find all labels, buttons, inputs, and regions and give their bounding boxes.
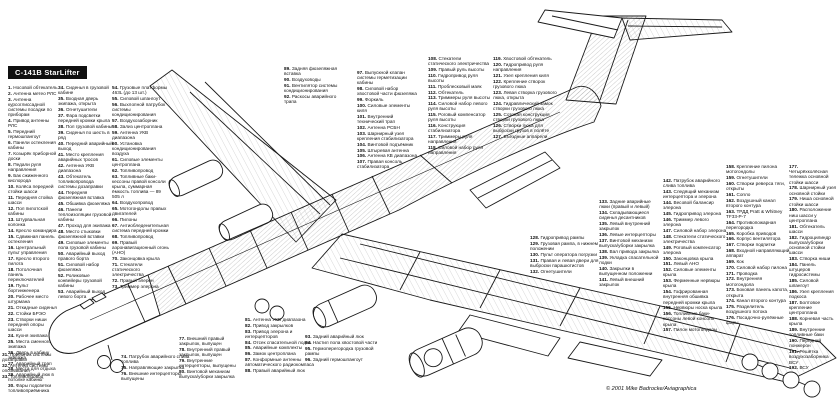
- legend-item: 156. Топливные баки-кессоны левой консол…: [663, 311, 727, 327]
- legend-item: 43. Обтекатель топливопровода системы до…: [58, 174, 113, 190]
- legend-item: 24. Кухня экипажа: [8, 333, 58, 338]
- legend-item: 61. Силовые элементы центроплана: [112, 157, 170, 167]
- legend-item: 190. Передний лонжерон: [789, 338, 838, 348]
- legend-item: 177. Четырёхколёсная тележка основной ст…: [789, 164, 838, 185]
- legend-item: 90. Воздуховоды: [284, 77, 344, 82]
- legend-item: 92. Раскосы аварийного трапа: [284, 94, 344, 104]
- right-engine-pods: [166, 157, 225, 199]
- legend-item: 9. Бак сжиженного кислорода: [8, 173, 58, 183]
- legend-column-12: 128. Гидропривод рампы129. Грузовая рамп…: [530, 235, 600, 274]
- diagram-title: C-141B StarLifter: [8, 66, 87, 79]
- legend-item: 98. Силовой набор хвостовой части фюзеля…: [357, 86, 419, 96]
- legend-item: 145. Гидропривод элерона: [663, 211, 727, 216]
- legend-item: 144. Весовой балансир элерона: [663, 200, 727, 210]
- legend-item: 95. Гермоперегородка грузовой рампы: [305, 346, 387, 356]
- legend-column-2: 34. Сиденья в грузовой кабине35. Входная…: [58, 85, 113, 300]
- legend-item: 97. Выпускной клапан системы герметизаци…: [357, 70, 419, 86]
- legend-item: 147. Силовой набор элерона: [663, 228, 727, 233]
- legend-item: 23. Створки ниши передней опоры шасси: [8, 317, 58, 333]
- legend-item: 108. Стекатели статического электричеств…: [428, 56, 490, 66]
- legend-item: 128. Гидропривод рампы: [530, 235, 600, 240]
- legend-item: 187. Болтовое крепление центроплана: [789, 300, 838, 316]
- legend-item: 114. Силовой набор левого руля высоты: [428, 101, 490, 111]
- legend-item: 59. Антенна УКВ диапазона: [112, 130, 170, 140]
- legend-item: 77. Внешний правый закрылок, выпущен: [179, 336, 245, 346]
- legend-item: 127. Въездные аппарели: [493, 134, 557, 139]
- legend-item: 34. Сиденья в грузовой кабине: [58, 85, 113, 95]
- legend-column-15: 158. Крепление пилона мотогондолы159. Ог…: [726, 164, 790, 326]
- legend-item: 58. Зализ центроплана: [112, 124, 170, 129]
- legend-item: 99. Форкиль: [357, 97, 419, 102]
- legend-item: 8. Педали руля направления: [8, 162, 58, 172]
- legend-item: 164. Противопожарная перегородка: [726, 220, 790, 230]
- legend-item: 171. Проводка: [726, 271, 790, 276]
- legend-item: 45. Обшивка фюзеляжа: [58, 201, 113, 206]
- legend-item: 62. Топливопровод: [112, 168, 170, 173]
- legend-column-14: 142. Патрубок аварийного слива топлива14…: [663, 178, 727, 333]
- legend-item: 31. Приёмник системы дозаправки: [2, 352, 56, 362]
- legend-item: 57. Воздухозаборник: [112, 118, 170, 123]
- legend-column-7: 119. Хвостовой обтекатель120. Гидроприво…: [493, 56, 557, 139]
- legend-item: 180. Расположение ниш шасси у центроплан…: [789, 207, 838, 223]
- legend-item: 157. Пилон мотогондолы: [663, 327, 727, 332]
- legend-item: 141. Левый внешний закрылок: [599, 277, 661, 287]
- legend-item: 179. Ниша основной стойки шасси: [789, 196, 838, 206]
- legend-item: 153. Ферменные нервюры крыла: [663, 278, 727, 288]
- legend-item: 25. Места сменного экипажа: [8, 339, 58, 349]
- legend-item: 81. Антенна УКВ диапазона: [245, 317, 317, 322]
- legend-item: 38. Пол грузовой кабины: [58, 124, 113, 129]
- legend-item: 40. Передний аварийный выход: [58, 141, 113, 151]
- legend-column-1b: 31. Приёмник системы дозаправки32. Антен…: [2, 352, 56, 380]
- legend-item: 168. Входной направляющий аппарат: [726, 248, 790, 258]
- legend-item: 66. Пилоны: [112, 217, 170, 222]
- legend-item: 122. Крепление створок грузового люка: [493, 79, 557, 89]
- legend-item: 186. Узел крепления подкоса: [789, 289, 838, 299]
- legend-item: 161. Сопло: [726, 192, 790, 197]
- legend-item: 5. Передний гермошпангоут: [8, 129, 58, 139]
- legend-item: 63. Топливные баки-кессоны правой консол…: [112, 174, 170, 200]
- legend-item: 139. Укладка спасательной лодки: [599, 255, 661, 265]
- legend-item: 56. Выхлопной патрубок системы кондицион…: [112, 102, 170, 118]
- legend-item: 3. Антенна курсоглиссадной системы посад…: [8, 97, 58, 118]
- legend-item: 176. Посадочно-рулёжные фары: [726, 315, 790, 325]
- legend-item: 51. Силовой набор фюзеляжа: [58, 262, 113, 272]
- legend-item: 94. Настил пола хвостовой части: [305, 340, 387, 345]
- legend-item: 172. Внутренняя мотогондола: [726, 276, 790, 286]
- legend-item: 136. Левые интерцепторы: [599, 232, 661, 237]
- legend-item: 162. Воздушный канал второго контура: [726, 198, 790, 208]
- legend-item: 138. Вал привода закрылка: [599, 249, 661, 254]
- legend-column-16: 177. Четырёхколёсная тележка основной ст…: [789, 164, 838, 371]
- legend-item: 182. Гидроцилиндр выпуска/уборки основно…: [789, 235, 838, 256]
- legend-item: 185. Силовой шпангоут: [789, 278, 838, 288]
- legend-item: 10. Колёса передней стойки шасси: [8, 184, 58, 194]
- legend-item: 137. Винтовой механизм выпуска/уборки за…: [599, 238, 661, 248]
- legend-item: 16. Центральный пульт управления: [8, 245, 58, 255]
- legend-item: 72. Правый элерон: [112, 278, 170, 283]
- legend-item: 151. Левый АНО: [663, 261, 727, 266]
- legend-item: 65. Мотогондолы правых двигателей: [112, 206, 170, 216]
- legend-item: 110. Гидропривод руля высоты: [428, 73, 490, 83]
- legend-item: 79. Внутренние интерцепторы, выпущены: [179, 358, 245, 368]
- legend-item: 121. Узел крепления киля: [493, 73, 557, 78]
- legend-item: 22. Стойки БРЭО: [8, 311, 58, 316]
- legend-item: 93. Задний аварийный люк: [305, 334, 387, 339]
- legend-item: 118. Силовой набор руля направления: [428, 145, 490, 155]
- legend-column-5: 97. Выпускной клапан системы герметизаци…: [357, 70, 419, 170]
- legend-item: 106. Антенна КВ диапазона: [357, 153, 419, 158]
- legend-item: 4. Привод антенны РЛС: [8, 118, 58, 128]
- legend-item: 41. Место крепления аварийных тросов: [58, 152, 113, 162]
- legend-item: 105. Штыревая антенна: [357, 148, 419, 153]
- legend-item: 82. Привод закрылков: [245, 323, 317, 328]
- copyright-credit: © 2001 Mike Badrocke/Aviagraphica: [606, 386, 696, 392]
- legend-item: 54. Грузовые платформы 463L (до 13 шт.): [112, 85, 170, 95]
- legend-item: 159. Огнетушители: [726, 175, 790, 180]
- legend-item: 146. Триммер левого элерона: [663, 217, 727, 227]
- legend-item: 14. Кресло командира: [8, 228, 58, 233]
- legend-item: 131. Правая и левая двери для выброски п…: [530, 258, 600, 268]
- legend-item: 71. Стекатели статического электричества: [112, 262, 170, 278]
- legend-item: 64. Воздухопровод: [112, 200, 170, 205]
- legend-item: 1. Носовой обтекатель: [8, 85, 58, 90]
- legend-item: 36. Огнетушители: [58, 107, 113, 112]
- legend-item: 68. Топливопровод: [112, 234, 170, 239]
- legend-item: 130. Пульт оператора погрузки: [530, 252, 600, 257]
- legend-item: 20. Рабочее место штурмана: [8, 294, 58, 304]
- legend-item: 152. Силовые элементы крыла: [663, 267, 727, 277]
- legend-item: 107. Правая консоль стабилизатора: [357, 159, 419, 169]
- legend-item: 15. Сдвижная панель остекления: [8, 234, 58, 244]
- legend-item: 19. Пульт бортинженера: [8, 283, 58, 293]
- legend-item: 115. Роговый компенсатор руля высоты: [428, 112, 490, 122]
- legend-item: 163. ТРДД Pratt & Whitney TF33-P-7: [726, 209, 790, 219]
- stabilizer-left: [538, 10, 622, 38]
- legend-item: 101. Внутренний технический трап: [357, 114, 419, 124]
- legend-item: 112. Обтекатель: [428, 90, 490, 95]
- legend-item: 125. Сотовая конструкция створки грузово…: [493, 112, 557, 122]
- legend-item: 7. Козырёк приборной доски: [8, 151, 58, 161]
- legend-item: 18. Потолочная панель переключателей: [8, 267, 58, 283]
- legend-item: 21. Откидные сиденья: [8, 305, 58, 310]
- legend-item: 60. Установка кондиционирования воздуха: [112, 141, 170, 157]
- legend-item: 2. Антенна метео РЛС: [8, 91, 58, 96]
- legend-item: 170. Силовой набор пилона: [726, 265, 790, 270]
- legend-item: 80. Винтовой механизм выпуска/уборки зак…: [179, 369, 245, 379]
- legend-item: 104. Винтовой подъёмник: [357, 142, 419, 147]
- legend-column-4: 89. Задняя фюзеляжная вставка90. Воздухо…: [284, 66, 344, 105]
- legend-item: 123. Левая створка грузового люка, откры…: [493, 90, 557, 100]
- legend-item: 178. Шарнирный узел основной стойки: [789, 185, 838, 195]
- legend-item: 35. Входная дверь экипажа, открыта: [58, 96, 113, 106]
- legend-item: 96. Задний гермошпангоут: [305, 357, 387, 362]
- legend-item: 119. Хвостовой обтекатель: [493, 56, 557, 61]
- legend-item: 142. Патрубок аварийного слива топлива: [663, 178, 727, 188]
- legend-item: 47. Проход для экипажа: [58, 223, 113, 228]
- legend-item: 111. Проблесковый маяк: [428, 84, 490, 89]
- legend-item: 148. Стекатели статического электричеств…: [663, 234, 727, 244]
- legend-item: 181. Обтекатель шасси: [789, 224, 838, 234]
- legend-item: 174. Канал второго контура: [726, 298, 790, 303]
- legend-item: 88. Правый аварийный люк: [245, 368, 317, 373]
- legend-item: 173. Боковая панель капота, открыта: [726, 287, 790, 297]
- legend-item: 103. Шарнирный узел крепления стабилизат…: [357, 131, 419, 141]
- legend-item: 143. Следящий механизм интерцептора и эл…: [663, 189, 727, 199]
- legend-item: 124. Гидравлический замок створки грузов…: [493, 101, 557, 111]
- legend-item: 37. Фара подсветки передней кромки крыла: [58, 113, 113, 123]
- legend-item: 189. Внутренние топливные баки: [789, 327, 838, 337]
- legend-item: 73. Триммер элерона: [112, 284, 170, 289]
- engine-cutaway-detail: [406, 324, 487, 380]
- legend-item: 149. Роговый компенсатор элерона: [663, 245, 727, 255]
- legend-item: 154. Гофрированная внутренняя обшивка пе…: [663, 289, 727, 305]
- legend-item: 134. Складывающиеся сиденья десантников: [599, 210, 661, 220]
- legend-item: 91. Вентилятор системы кондиционирования: [284, 83, 344, 93]
- legend-item: 183. Створка ниши: [789, 256, 838, 261]
- legend-item: 184. Панель штуцеров гидросистемы: [789, 262, 838, 278]
- legend-column-3: 54. Грузовые платформы 463L (до 13 шт.)5…: [112, 85, 170, 289]
- stabilizer-right: [622, 18, 732, 40]
- legend-item: 155. Нервюры носка крыла: [663, 305, 727, 310]
- legend-item: 175. Разделитель воздушного потока: [726, 304, 790, 314]
- legend-item: 129. Грузовая рампа, в нижнем положении: [530, 241, 600, 251]
- legend-item: 49. Силовые элементы пола грузовой кабин…: [58, 240, 113, 250]
- legend-item: 135. Левый внутренний закрылок: [599, 221, 661, 231]
- legend-item: 167. Створки подпитки: [726, 242, 790, 247]
- legend-column-6: 108. Стекатели статического электричеств…: [428, 56, 490, 156]
- legend-item: 52. Роликовые конвейеры грузовой кабины: [58, 273, 113, 289]
- legend-item: 69. Правый аэронавигационный огонь (АНО): [112, 240, 170, 256]
- legend-item: 100. Силовые элементы киля: [357, 103, 419, 113]
- legend-column-13: 133. Задние аварийные люки (правый и лев…: [599, 199, 661, 288]
- legend-item: 109. Правый руль высоты: [428, 67, 490, 72]
- legend-item: 117. Триммеры руля направления: [428, 134, 490, 144]
- legend-item: 50. Аварийный выход правого борта: [58, 251, 113, 261]
- legend-item: 192. ВСУ: [789, 365, 838, 370]
- legend-item: 55. Силовой шпангоут: [112, 96, 170, 101]
- legend-item: 32. Антенна системы опознавания: [2, 363, 56, 373]
- legend-column-9: 77. Внешний правый закрылок, выпущен78. …: [179, 336, 245, 380]
- legend-item: 12. Пол пилотской кабины: [8, 206, 58, 216]
- legend-item: 160. Створки реверса тяги, открыты: [726, 181, 790, 191]
- legend-item: 102. Антенна РСБН: [357, 125, 419, 130]
- legend-item: 70. Законцовка крыла: [112, 256, 170, 261]
- legend-item: 140. Закрылки в выпущенном положении: [599, 266, 661, 276]
- legend-item: 67. Антиобледенительная система передней…: [112, 223, 170, 233]
- legend-item: 166. Корпус вентилятора: [726, 236, 790, 241]
- legend-item: 48. Место стыковки фюзеляжной вставки: [58, 229, 113, 239]
- legend-item: 169. Кок: [726, 259, 790, 264]
- legend-item: 53. Аварийный выход левого борта: [58, 289, 113, 299]
- legend-item: 188. Корневая часть крыла: [789, 316, 838, 326]
- legend-item: 126. Створки люка для выброски грузов в …: [493, 123, 557, 133]
- legend-item: 17. Кресло второго пилота: [8, 256, 58, 266]
- legend-item: 30. Фары подсветки топливоприёмника: [8, 383, 58, 393]
- legend-item: 6. Панели остекления кабины: [8, 140, 58, 150]
- legend-item: 120. Гидропривод руля направления: [493, 62, 557, 72]
- legend-item: 42. Антенна УКВ диапазона: [58, 163, 113, 173]
- legend-item: 89. Задняя фюзеляжная вставка: [284, 66, 344, 76]
- cutaway-poster: { "title": "C-141B StarLifter", "copyrig…: [0, 0, 840, 402]
- legend-item: 113. Триммеры руля высоты: [428, 95, 490, 100]
- legend-item: 165. Коробка приводов: [726, 231, 790, 236]
- legend-item: 39. Сиденья по шесть в ряд: [58, 130, 113, 140]
- legend-item: 158. Крепление пилона мотогондолы: [726, 164, 790, 174]
- legend-item: 191. Решётка воздухозаборника ВСУ: [789, 349, 838, 365]
- legend-column-1: 1. Носовой обтекатель2. Антенна метео РЛ…: [8, 85, 58, 394]
- legend-item: 44. Передняя фюзеляжная вставка: [58, 190, 113, 200]
- legend-item: 46. Панели теплоизоляции грузовой кабины: [58, 207, 113, 223]
- legend-item: 33. Топливопровод: [2, 374, 56, 379]
- legend-item: 11. Передняя стойка шасси: [8, 195, 58, 205]
- legend-column-11: 93. Задний аварийный люк94. Настил пола …: [305, 334, 387, 362]
- left-engine-pod: [310, 282, 380, 331]
- legend-item: 133. Задние аварийные люки (правый и лев…: [599, 199, 661, 209]
- legend-item: 78. Внутренний правый закрылок, выпущен: [179, 347, 245, 357]
- legend-item: 132. Огнетушители: [530, 269, 600, 274]
- legend-item: 116. Конструкция стабилизатора: [428, 123, 490, 133]
- legend-item: 13. Штурвальная колонка: [8, 217, 58, 227]
